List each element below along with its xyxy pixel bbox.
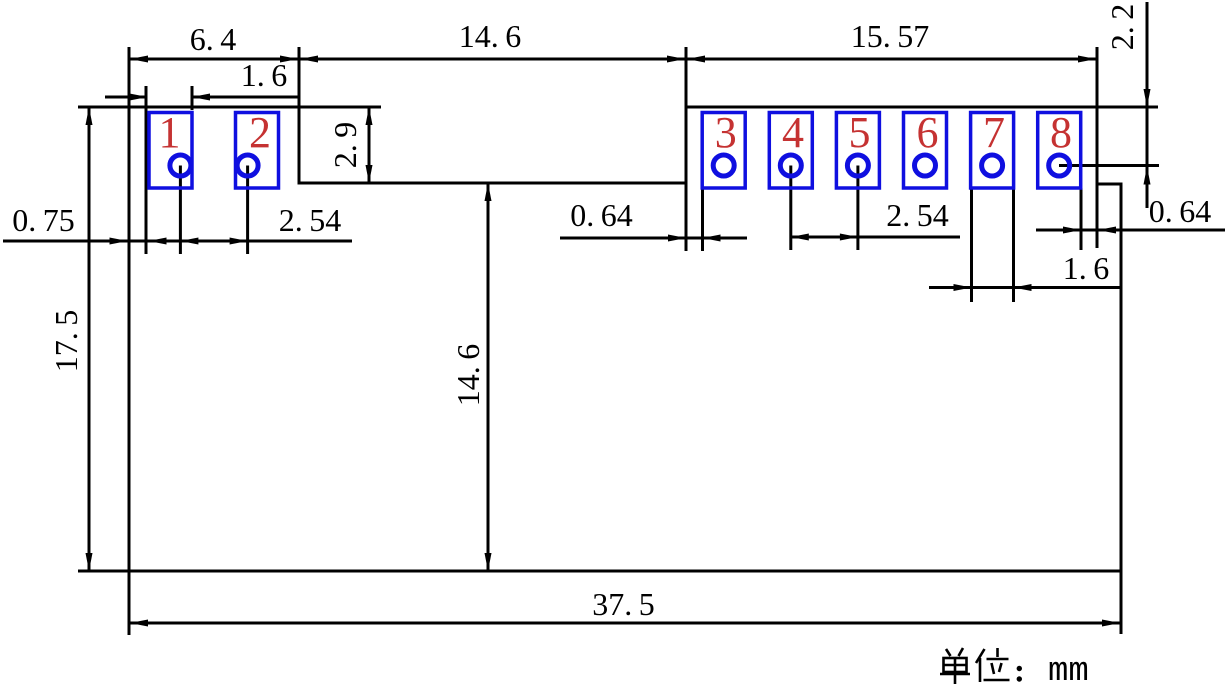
svg-text:4: 4 (782, 108, 804, 157)
svg-text:mm: mm (1048, 653, 1089, 691)
svg-text:1: 1 (159, 108, 181, 157)
svg-text:14.6: 14.6 (450, 344, 486, 407)
svg-text:2.9: 2.9 (327, 122, 363, 169)
svg-text:7: 7 (983, 108, 1005, 157)
svg-text:2.54: 2.54 (886, 197, 949, 233)
svg-text:2.54: 2.54 (279, 202, 342, 238)
svg-text:15.57: 15.57 (851, 18, 930, 54)
svg-text:2: 2 (249, 108, 271, 157)
svg-text:0.64: 0.64 (1149, 193, 1212, 229)
svg-text:8: 8 (1050, 108, 1072, 157)
svg-text:0.64: 0.64 (570, 197, 633, 233)
svg-text:3: 3 (715, 108, 737, 157)
svg-text:17.5: 17.5 (48, 310, 84, 373)
svg-text:1.6: 1.6 (241, 57, 287, 93)
svg-text:6: 6 (917, 108, 939, 157)
svg-text:5: 5 (849, 108, 871, 157)
svg-text:37.5: 37.5 (592, 586, 655, 622)
svg-text:1.6: 1.6 (1063, 250, 1110, 286)
svg-text:0.75: 0.75 (12, 202, 75, 238)
svg-text:14.6: 14.6 (459, 18, 522, 54)
svg-text:6.4: 6.4 (190, 21, 237, 57)
svg-text:2.2: 2.2 (1104, 4, 1140, 51)
